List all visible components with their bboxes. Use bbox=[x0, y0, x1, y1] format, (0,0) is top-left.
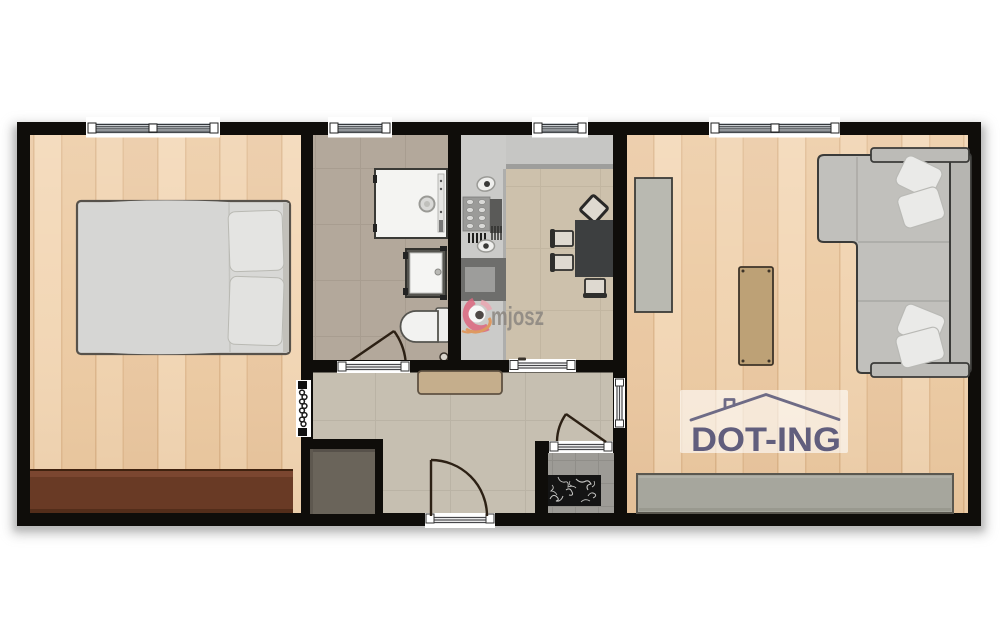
svg-text:mjosz: mjosz bbox=[491, 301, 544, 331]
svg-text:DOT-ING: DOT-ING bbox=[691, 421, 841, 459]
